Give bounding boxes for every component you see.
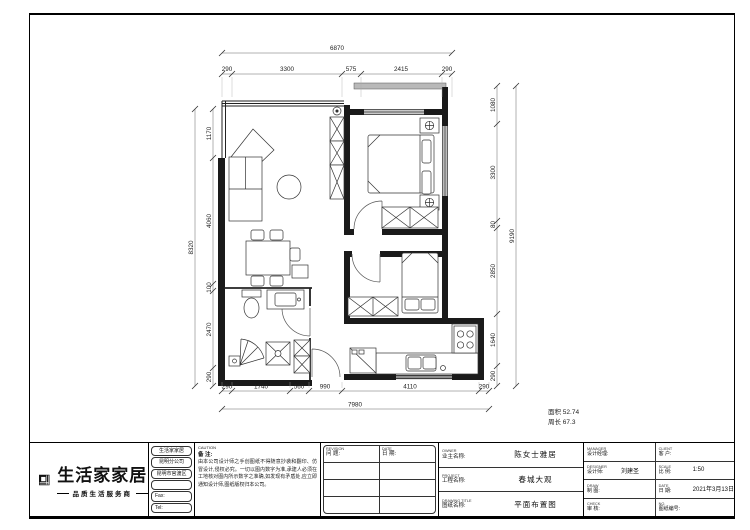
company-logo-section: 生活家家居 品质生活服务商 (30, 443, 149, 516)
branch-info-section: 生活家家居 昆明分公司 昆明市官渡区 Fax: Tel: (149, 443, 195, 516)
dining-table (246, 241, 290, 275)
draw-field: DRAW 制 图: (584, 480, 655, 499)
branch-line: 生活家家居 (151, 446, 192, 457)
pillow (422, 140, 431, 163)
drawing-number-field: NO. 图纸编号: (656, 499, 734, 517)
svg-text:290: 290 (442, 66, 453, 73)
master-bedroom-furniture (368, 118, 439, 228)
bathroom-fixtures (229, 290, 310, 373)
perimeter-value: 周长 67.3 (548, 417, 576, 426)
manager-field: MANAGER 设计经理: (584, 443, 655, 462)
date-field: DATE 日 期: 2021年3月13日 (656, 480, 734, 499)
designer-value: 刘建圣 (621, 466, 639, 475)
drawing-sheet-frame: 6870 290 3300 575 2415 290 290 1740 560 … (29, 13, 735, 519)
svg-text:4060: 4060 (206, 214, 213, 229)
drawing-sheet-page: 6870 290 3300 575 2415 290 290 1740 560 … (0, 0, 750, 530)
kitchen-fixtures (350, 324, 478, 374)
svg-text:290: 290 (206, 371, 213, 382)
title-block: 生活家家居 品质生活服务商 生活家家居 昆明分公司 昆明市官渡区 Fax: Te… (30, 442, 734, 516)
tel-line: Tel: (151, 503, 192, 514)
dining-chair (270, 230, 283, 240)
pillow (421, 299, 435, 310)
svg-text:100: 100 (206, 282, 213, 293)
svg-text:80: 80 (490, 221, 497, 229)
entry-door (312, 349, 340, 377)
floor-drain (441, 366, 446, 371)
company-logo-icon (39, 464, 50, 496)
bathroom-door (282, 308, 310, 336)
svg-text:990: 990 (320, 384, 331, 391)
dim-top-overall: 6870 (330, 45, 345, 52)
company-tagline: 品质生活服务商 (73, 488, 133, 498)
check-field: CHECK 审 核: (584, 499, 655, 517)
svg-text:290: 290 (490, 370, 497, 381)
project-value: 春城大观 (488, 474, 583, 485)
dim-bottom-overall: 7980 (348, 402, 363, 409)
owner-row: OWNER 业主名称: 陈女士雅居 (439, 443, 583, 468)
company-name: 生活家家居 (57, 461, 147, 486)
tagline-dash (136, 493, 148, 494)
dining-chair (251, 230, 264, 240)
living-room-furniture (229, 107, 344, 221)
dining-furniture (246, 230, 308, 286)
area-value: 面积 52.74 (548, 407, 579, 416)
project-label-cn: 工程名称: (442, 478, 488, 485)
revision-empty-row (324, 463, 435, 480)
svg-text:290: 290 (222, 66, 233, 73)
svg-text:1740: 1740 (254, 384, 269, 391)
project-row: PROJECT 工程名称: 春城大观 (439, 468, 583, 493)
dining-chair (251, 276, 264, 286)
caution-section: CAUTION 备 注: 由本公司设计师之手创图纸不得随意抄袭和翻印、仿冒设计,… (195, 443, 321, 516)
side-table (292, 265, 308, 278)
tagline-dash (57, 493, 69, 494)
designer-field: DESIGNER 设计师: 刘建圣 (584, 462, 655, 481)
pillow (422, 171, 431, 194)
drawing-title-value: 平面布置图 (488, 499, 583, 510)
area-note: 面积 52.74 周长 67.3 (548, 407, 579, 426)
toilet (244, 298, 259, 318)
svg-text:3300: 3300 (280, 66, 295, 73)
pillow (405, 299, 419, 310)
branch-line: 昆明市官渡区 (151, 469, 192, 480)
project-info-section: OWNER 业主名称: 陈女士雅居 PROJECT 工程名称: 春城大观 DRA… (439, 443, 584, 516)
revision-section: REVISION 问 题: DATE 日 期: (321, 443, 439, 516)
party-wall (354, 83, 448, 111)
revision-header-row: REVISION 问 题: DATE 日 期: (324, 446, 435, 463)
scale-value: 1:50 (693, 467, 705, 473)
scale-field: SCALE 比 例: 1:50 (656, 462, 734, 481)
drawing-title-label-cn: 图纸名称: (442, 503, 488, 510)
second-bedroom-furniture (348, 253, 438, 316)
toilet-tank (242, 290, 261, 297)
svg-text:1080: 1080 (490, 98, 497, 113)
svg-text:2470: 2470 (206, 322, 213, 337)
shower-spray (240, 339, 264, 365)
coffee-table (277, 175, 301, 199)
svg-text:3300: 3300 (490, 165, 497, 180)
floor-plan: 6870 290 3300 575 2415 290 290 1740 560 … (30, 15, 734, 445)
stove (454, 326, 476, 353)
date-value: 2021年3月13日 (693, 484, 734, 493)
svg-text:290: 290 (222, 384, 233, 391)
personnel-section: MANAGER 设计经理: DESIGNER 设计师: 刘建圣 DRAW 制 (584, 443, 734, 516)
caution-text: 由本公司设计师之手创图纸不得随意抄袭和翻印、仿冒设计,侵权必究。一切以图内数字为… (198, 459, 317, 489)
owner-value: 陈女士雅居 (488, 449, 583, 460)
bedroom2-door (352, 254, 380, 282)
svg-text:560: 560 (294, 384, 305, 391)
svg-text:2850: 2850 (490, 264, 497, 279)
dining-chair (270, 276, 283, 286)
owner-label-cn: 业主名称: (442, 454, 488, 461)
branch-line: 昆明分公司 (151, 457, 192, 468)
branch-line (151, 480, 192, 491)
svg-text:2415: 2415 (394, 66, 409, 73)
sink-basin (275, 293, 296, 306)
date-col-cn: 日 期: (382, 451, 433, 458)
svg-text:290: 290 (479, 384, 490, 391)
fax-line: Fax: (151, 491, 192, 502)
svg-text:575: 575 (346, 66, 357, 73)
revision-col-cn: 问 题: (326, 451, 377, 458)
caution-label-cn: 备 注: (198, 450, 317, 458)
drawing-title-row: DRAWING TITLE 图纸名称: 平面布置图 (439, 492, 583, 516)
svg-text:4110: 4110 (403, 384, 417, 391)
master-door (354, 201, 382, 229)
svg-text:1640: 1640 (490, 333, 497, 348)
dining-chair (290, 248, 300, 261)
revision-empty-row (324, 497, 435, 513)
client-field: CLIENT 客 户: (656, 443, 734, 462)
revision-empty-row (324, 480, 435, 497)
dim-left-overall: 8320 (188, 240, 195, 255)
svg-text:1170: 1170 (206, 126, 213, 140)
dim-right-overall: 9190 (509, 229, 516, 244)
